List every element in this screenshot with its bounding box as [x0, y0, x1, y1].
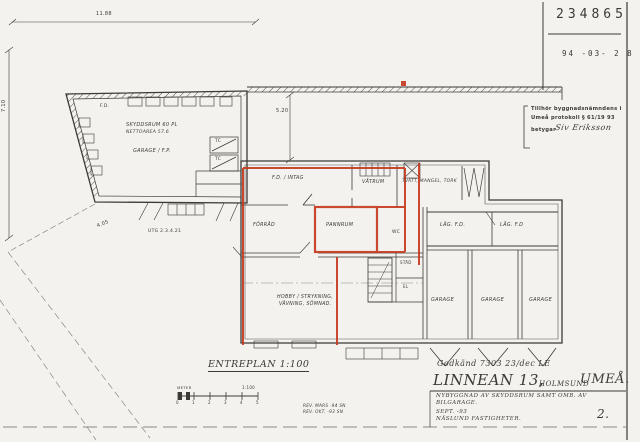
approval-signature: Siv Eriksson: [554, 124, 612, 133]
scale-tick-2: 2: [208, 401, 211, 405]
scale-tick-1: 1: [192, 401, 195, 405]
room-label-lag-fd-2: LÄG. F.D: [500, 223, 523, 229]
property-boundary-lines: [0, 204, 150, 440]
titleblock-client: NÄSLUND FASTIGHETER.: [436, 416, 521, 422]
scale-tick-0: 0: [176, 401, 179, 405]
approval-stamp-line1: Tillhör byggnadsnämndens i: [531, 107, 622, 113]
scale-ratio-label: 1:100: [242, 386, 255, 390]
room-label-laundry: TVÄTT, MANGEL, TORK: [402, 180, 457, 185]
titleblock-project-line1: NYBYGGNAD AV SKYDDSRUM SAMT OMB. AV: [436, 393, 587, 399]
shelter-building-outline: [66, 91, 247, 221]
shelter-entrance-steps: [139, 203, 238, 221]
room-label-fd-intag: F.D. / INTAG: [272, 176, 304, 181]
scale-tick-3: 3: [224, 401, 227, 405]
room-label-fd: F.D.: [100, 105, 109, 110]
document-number: 234865: [556, 8, 627, 22]
date-stamp: 94 -03- 2 8: [562, 50, 634, 58]
approval-stamp-betygar: betygar: [531, 128, 556, 134]
room-label-wc: WC: [392, 231, 400, 236]
main-building-outline: [233, 161, 562, 366]
revision-line1: REV. MARS -94 SN: [303, 404, 346, 409]
titleblock-property: LINNEAN 13,: [433, 372, 544, 389]
scale-bar: [178, 392, 258, 400]
titleblock-date: SEPT. -93: [436, 409, 467, 415]
red-reference-dot: [401, 81, 406, 86]
room-label-garage-1: GARAGE: [431, 298, 454, 304]
drawing-sheet: 234865 94 -03- 2 8 Tillhör byggnadsnämnd…: [0, 0, 640, 442]
room-label-stad: STÄD: [400, 261, 412, 265]
revision-line2: REV. OKT. -93 SN: [303, 410, 343, 415]
room-label-tc-b: TC: [215, 158, 221, 163]
plan-title: ENTREPLAN 1:100: [208, 360, 309, 372]
room-label-hobby-line1: HOBBY / STRYKNING,: [277, 295, 333, 300]
room-label-tc-a: TC: [215, 140, 221, 145]
scale-tick-4: 4: [240, 401, 243, 405]
scale-unit-label: METER: [177, 386, 192, 390]
room-label-vatrum: VÅTRUM: [362, 180, 384, 185]
room-label-forrad: FÖRRÅD: [253, 223, 275, 228]
room-label-skyddsrum: SKYDDSRUM 60 PL: [126, 123, 178, 129]
sheet-number: 2.: [597, 408, 609, 421]
room-label-el: EL: [403, 285, 408, 289]
dimension-courtyard: 5.20: [276, 109, 288, 115]
shelter-inner-rooms: [196, 171, 241, 197]
courtyard-wall: [247, 87, 562, 100]
room-label-garage-fp: GARAGE / F.P.: [133, 149, 171, 155]
room-label-pannrum: PANNRUM: [326, 223, 353, 229]
scale-tick-5: 5: [256, 401, 259, 405]
room-label-garage-2: GARAGE: [481, 298, 504, 304]
titleblock-project-line2: BILGARAGE.: [436, 400, 478, 406]
exit-note: UTG 2.3.4.21: [148, 230, 181, 235]
titleblock-approval: Godkänd 7303 23/dec LE: [437, 360, 551, 369]
room-label-hobby-line2: VÄVNING, SÖMNAD.: [279, 302, 332, 307]
room-label-lag-fd-1: LÄG. F.D.: [440, 223, 465, 229]
approval-stamp-line2: Umeå protokoll § 61/19 93: [531, 116, 615, 122]
titleblock-city: UMEÅ.: [580, 373, 630, 387]
room-label-garage-3: GARAGE: [529, 298, 552, 304]
stair-and-service-rooms: [368, 253, 423, 302]
dimension-top: 11.88: [96, 12, 112, 18]
dimension-left: 7.10: [2, 100, 8, 112]
room-label-nettoarea: NETTOAREA 57.6: [126, 131, 169, 136]
